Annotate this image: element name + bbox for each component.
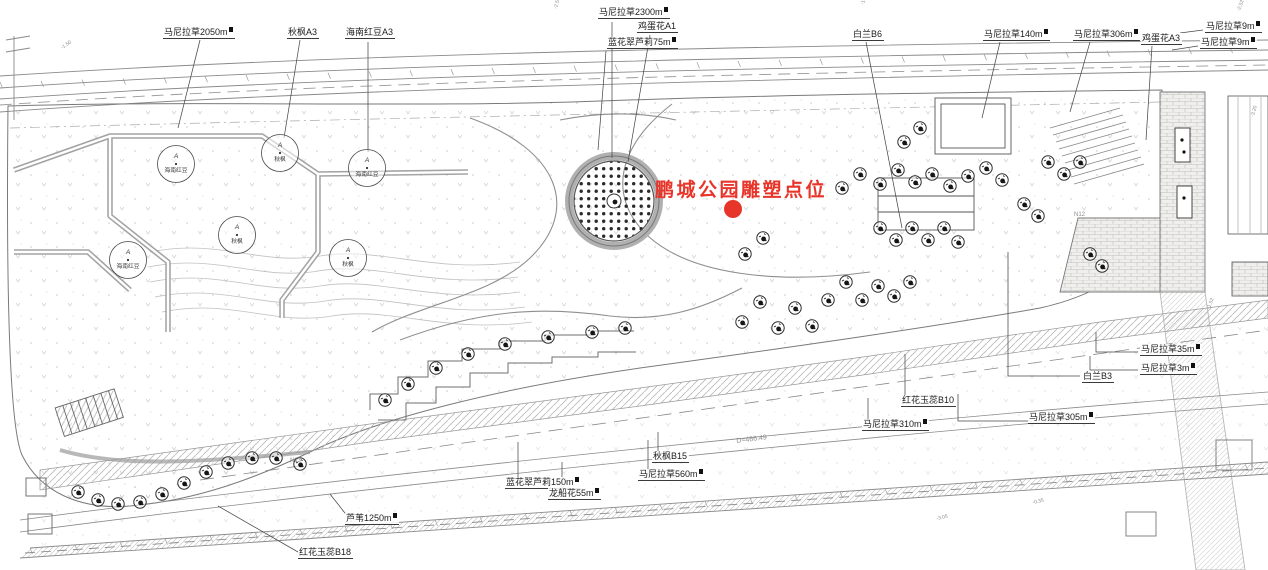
tree-symbol: [178, 477, 190, 489]
tree-symbol: [890, 234, 902, 246]
tree-symbol: [806, 320, 818, 332]
tree-symbol: [92, 494, 104, 506]
tree-symbol: [772, 322, 784, 334]
tree-symbol: [134, 496, 146, 508]
tree-symbol: [962, 170, 974, 182]
tree-symbol: [402, 378, 414, 390]
tree-symbol: [1018, 198, 1030, 210]
labelled-tree-circle: A海南红豆: [349, 150, 386, 187]
tree-symbol: [944, 180, 956, 192]
tree-symbol: [222, 457, 234, 469]
tree-symbol: [1032, 210, 1044, 222]
tree-symbol: [739, 248, 751, 260]
east-plaza: [1228, 96, 1268, 234]
tree-symbol: [980, 162, 992, 174]
tree-symbol: [757, 232, 769, 244]
tree-symbol: [926, 168, 938, 180]
svg-text:秋枫: 秋枫: [342, 260, 354, 268]
tree-symbol: [836, 182, 848, 194]
tree-symbol: [904, 276, 916, 288]
tree-symbol: [922, 234, 934, 246]
tree-symbol: [854, 168, 866, 180]
tree-symbol: [156, 488, 168, 500]
svg-text:海南红豆: 海南红豆: [355, 170, 378, 178]
tree-symbol: [952, 236, 964, 248]
tree-symbol: [619, 322, 631, 334]
tree-symbol: [909, 176, 921, 188]
tree-symbol: [1042, 156, 1054, 168]
tree-symbol: [542, 331, 554, 343]
labelled-tree-circle: A秋枫: [330, 240, 367, 277]
tree-symbol: [294, 458, 306, 470]
tree-symbol: [906, 222, 918, 234]
planter-box: [1177, 186, 1192, 218]
tree-symbol: [898, 136, 910, 148]
svg-text:A: A: [125, 249, 130, 256]
circular-plaza: [569, 156, 659, 246]
tree-symbol: [430, 362, 442, 374]
svg-text:海南红豆: 海南红豆: [116, 262, 139, 270]
site-plan: A海南红豆A秋枫A海南红豆A秋枫A海南红豆A秋枫 马尼拉草2050m秋枫A3海南…: [0, 0, 1268, 570]
tree-symbol: [789, 302, 801, 314]
tree-symbol: [874, 178, 886, 190]
tree-symbol: [379, 394, 391, 406]
svg-text:秋枫: 秋枫: [231, 237, 243, 245]
tree-symbol: [874, 222, 886, 234]
tree-symbol: [1058, 168, 1070, 180]
tree-symbol: [499, 338, 511, 350]
tree-symbol: [270, 452, 282, 464]
sculpture-point-dot[interactable]: [724, 200, 742, 218]
plan-drawing: A海南红豆A秋枫A海南红豆A秋枫A海南红豆A秋枫: [0, 0, 1268, 570]
tree-symbol: [822, 294, 834, 306]
labelled-tree-circle: A秋枫: [219, 217, 256, 254]
tree-symbol: [856, 294, 868, 306]
leader-line: [1172, 46, 1198, 50]
tree-symbol: [892, 164, 904, 176]
tree-symbol: [736, 316, 748, 328]
tree-symbol: [112, 498, 124, 510]
svg-text:海南红豆: 海南红豆: [164, 166, 187, 174]
planter-box: [1175, 128, 1190, 162]
tree-symbol: [938, 222, 950, 234]
svg-text:A: A: [277, 142, 282, 149]
labelled-tree-circle: A秋枫: [262, 135, 299, 172]
sculpture-annotation-text: 鹏城公园雕塑点位: [655, 175, 827, 202]
tree-symbol: [1084, 248, 1096, 260]
tree-symbol: [200, 466, 212, 478]
tree-symbol: [914, 122, 926, 134]
labelled-tree-circle: A海南红豆: [158, 146, 195, 183]
svg-text:A: A: [345, 247, 350, 254]
svg-text:秋枫: 秋枫: [274, 155, 286, 163]
east-square: [1232, 262, 1268, 296]
tree-symbol: [996, 174, 1008, 186]
tree-symbol: [246, 452, 258, 464]
tree-symbol: [72, 486, 84, 498]
paved-plaza: [1060, 218, 1160, 292]
tree-symbol: [586, 326, 598, 338]
labelled-tree-circle: A海南红豆: [110, 242, 147, 279]
svg-text:A: A: [234, 224, 239, 231]
tree-symbol: [840, 276, 852, 288]
svg-text:A: A: [364, 157, 369, 164]
tree-symbol: [1074, 156, 1086, 168]
tree-symbol: [462, 348, 474, 360]
leader-line: [1180, 30, 1203, 33]
tree-symbol: [1096, 260, 1108, 272]
tree-symbol: [754, 296, 766, 308]
svg-text:A: A: [173, 153, 178, 160]
tree-symbol: [872, 280, 884, 292]
tree-symbol: [888, 290, 900, 302]
